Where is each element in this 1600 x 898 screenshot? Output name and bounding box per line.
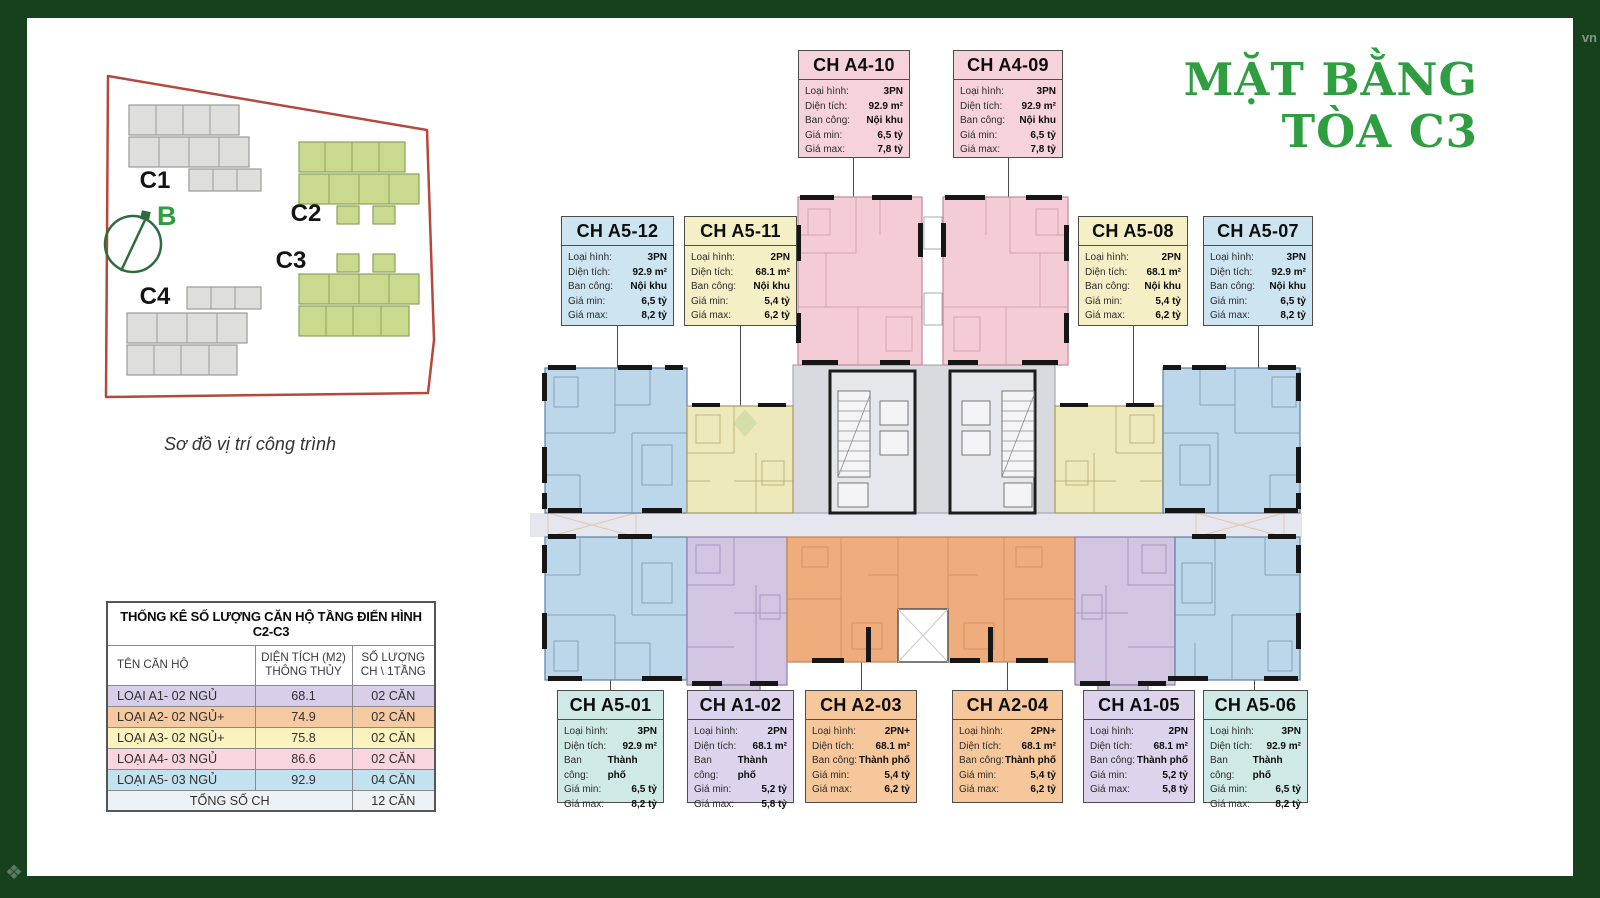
unit-card-ch-a1-05: CH A1-05 Loại hình:2PN Diện tích:68.1 m²… xyxy=(1083,690,1195,803)
unit-a5-01-plan xyxy=(545,537,687,680)
total-label: TỔNG SỐ CH xyxy=(107,790,352,811)
unit-a5-06-plan xyxy=(1175,537,1300,680)
page: vn ❖ MẶT BẰNG TÒA C3 C1 C2 C3 xyxy=(0,0,1600,898)
compass-icon xyxy=(105,210,161,272)
unit-card-ch-a5-12: CH A5-12 Loại hình:3PN Diện tích:92.9 m²… xyxy=(561,216,674,326)
stats-title-row: THỐNG KÊ SỐ LƯỢNG CĂN HỘ TẦNG ĐIỂN HÌNH … xyxy=(107,602,435,646)
page-title-line1: MẶT BẰNG xyxy=(1140,54,1478,106)
unit-a4-10-plan xyxy=(798,197,922,365)
unit-a1-02-plan xyxy=(687,537,787,685)
col-header-area: DIỆN TÍCH (M2) THÔNG THỦY xyxy=(255,646,352,686)
unit-card-ch-a4-10: CH A4-10 Loại hình:3PN Diện tích:92.9 m²… xyxy=(798,50,910,158)
wing-bridge xyxy=(924,217,942,325)
site-caption: Sơ đồ vị trí công trình xyxy=(105,434,395,455)
site-plan: C1 C2 C3 C4 B xyxy=(85,58,455,438)
page-title: MẶT BẰNG TÒA C3 xyxy=(1140,54,1478,158)
unit-card-ch-a4-09: CH A4-09 Loại hình:3PN Diện tích:92.9 m²… xyxy=(953,50,1063,158)
col-header-name: TÊN CĂN HỘ xyxy=(107,646,255,686)
unit-a1-05-plan xyxy=(1075,537,1175,685)
unit-card-ch-a2-03: CH A2-03 Loại hình:2PN+ Diện tích:68.1 m… xyxy=(805,690,917,803)
stats-header-row: TÊN CĂN HỘ DIỆN TÍCH (M2) THÔNG THỦY SỐ … xyxy=(107,646,435,686)
col-header-count: SỐ LƯỢNG CH \ 1TẦNG xyxy=(352,646,435,686)
unit-card-ch-a5-08: CH A5-08 Loại hình:2PN Diện tích:68.1 m²… xyxy=(1078,216,1188,326)
table-row: LOẠI A2- 02 NGỦ+ 74.9 02 CĂN xyxy=(107,706,435,727)
stats-table: THỐNG KÊ SỐ LƯỢNG CĂN HỘ TẦNG ĐIỂN HÌNH … xyxy=(106,601,436,812)
watermark-logo-icon: ❖ xyxy=(5,860,23,885)
table-row: LOẠI A3- 02 NGỦ+ 75.8 02 CĂN xyxy=(107,727,435,748)
page-title-line2: TÒA C3 xyxy=(1140,106,1478,158)
unit-card-ch-a2-04: CH A2-04 Loại hình:2PN+ Diện tích:68.1 m… xyxy=(952,690,1063,803)
watermark-text: vn xyxy=(1582,30,1597,45)
table-row: LOẠI A4- 03 NGỦ 86.6 02 CĂN xyxy=(107,748,435,769)
label-c3: C3 xyxy=(276,247,307,274)
unit-a5-07-plan xyxy=(1163,368,1300,513)
label-c4: C4 xyxy=(140,283,171,310)
unit-card-ch-a5-06: CH A5-06 Loại hình:3PN Diện tích:92.9 m²… xyxy=(1203,690,1308,803)
unit-card-ch-a5-11: CH A5-11 Loại hình:2PN Diện tích:68.1 m²… xyxy=(684,216,797,326)
connector-a4-10 xyxy=(853,158,854,200)
table-row: LOẠI A5- 03 NGỦ 92.9 04 CĂN xyxy=(107,769,435,790)
unit-card-ch-a1-02: CH A1-02 Loại hình:2PN Diện tích:68.1 m²… xyxy=(687,690,794,803)
north-label: B xyxy=(157,201,177,231)
unit-a5-12-plan xyxy=(545,368,687,513)
building-c3 xyxy=(299,254,419,336)
stats-title: THỐNG KÊ SỐ LƯỢNG CĂN HỘ TẦNG ĐIỂN HÌNH … xyxy=(107,602,435,646)
total-value: 12 CĂN xyxy=(352,790,435,811)
unit-card-ch-a5-01: CH A5-01 Loại hình:3PN Diện tích:92.9 m²… xyxy=(557,690,664,803)
label-c1: C1 xyxy=(140,167,171,194)
unit-a5-08-plan xyxy=(1055,406,1163,513)
label-c2: C2 xyxy=(291,200,322,227)
table-row: LOẠI A1- 02 NGỦ 68.1 02 CĂN xyxy=(107,685,435,706)
connector-a4-09 xyxy=(1008,158,1009,200)
unit-card-ch-a5-07: CH A5-07 Loại hình:3PN Diện tích:92.9 m²… xyxy=(1203,216,1313,326)
table-total-row: TỔNG SỐ CH 12 CĂN xyxy=(107,790,435,811)
